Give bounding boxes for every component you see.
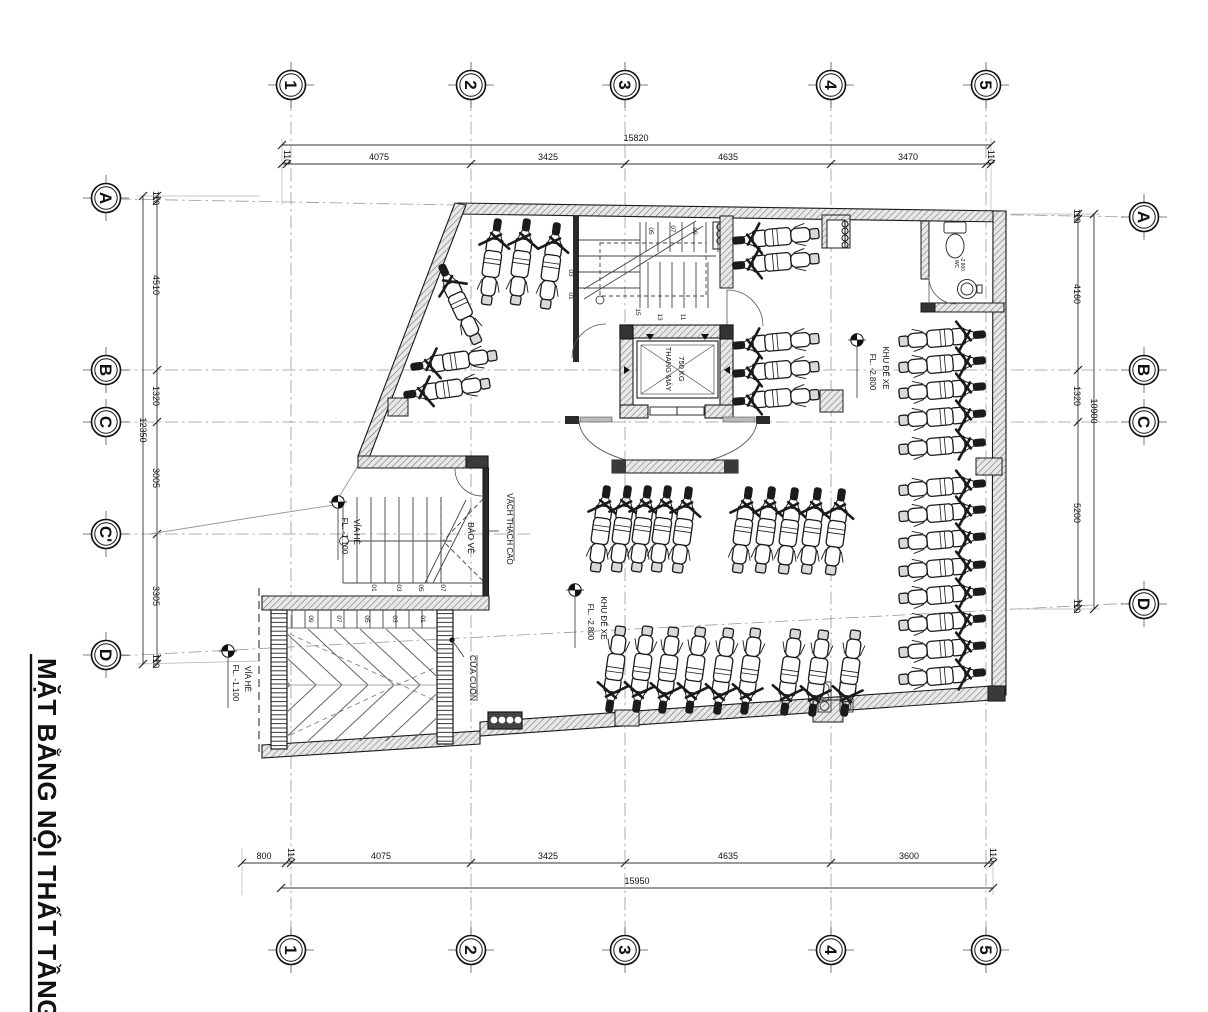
wall-bottom xyxy=(480,686,992,736)
motorbike-icon xyxy=(401,368,491,410)
door-stub xyxy=(565,416,579,424)
parking-level-label: FL. -2.800 xyxy=(586,604,595,641)
grid-bubble: 4 xyxy=(808,62,854,108)
motorbike-icon xyxy=(731,379,820,416)
grid-bubble: C xyxy=(83,399,129,445)
wc-level-text: -2.800 xyxy=(959,257,965,271)
dimension-text: 10900 xyxy=(1089,398,1099,423)
grid-bubble: 5 xyxy=(963,62,1009,108)
toilet-icon xyxy=(944,222,966,258)
sheet-title-text: MẶT BẰNG NỘI THẤT TẦNG HẦM xyxy=(32,658,62,1012)
sink-icon xyxy=(958,280,983,299)
wall-right xyxy=(992,211,1006,695)
wall-block xyxy=(466,456,488,468)
dimension-text: 1320 xyxy=(1072,386,1082,406)
dimension-text: 4160 xyxy=(1072,284,1082,304)
motorbike-icon xyxy=(898,603,987,640)
motorbike-icon xyxy=(674,625,716,715)
step-number: 07 xyxy=(439,584,446,592)
door-arc xyxy=(455,469,482,496)
step-number: 09 xyxy=(307,615,314,623)
elevator-label-line2: 750 KG xyxy=(677,356,686,382)
motorbike-icon xyxy=(815,486,857,576)
motorbike-icon xyxy=(898,427,987,464)
dimension-text: 15950 xyxy=(624,876,649,886)
dimension-text: 4075 xyxy=(371,851,391,861)
grid-bubble-label: B xyxy=(96,364,115,376)
security-room-label: BẢO VỆ xyxy=(466,522,477,554)
partition-label: VÁCH THẠCH CAO xyxy=(489,493,514,564)
grid-bubble-label: 2 xyxy=(461,80,480,89)
dimension-text: 15820 xyxy=(623,133,648,143)
step-number: 11 xyxy=(679,314,686,321)
step-number: 05 xyxy=(417,584,424,592)
drawing-sheet: 1582011040753425463534701101595080011040… xyxy=(0,0,1208,1012)
motorbike-icon xyxy=(898,630,987,667)
dimension-text: 5200 xyxy=(1072,503,1082,523)
parking-area-label: KHU ĐỂ XE xyxy=(881,346,890,389)
grid-bubble: B xyxy=(83,347,129,393)
stair-right-wall xyxy=(720,216,733,288)
door-arc xyxy=(929,277,956,304)
lobby-wall xyxy=(612,460,738,473)
dimension-text: 800 xyxy=(256,851,271,861)
top-shaft-box xyxy=(822,215,850,248)
wc-label-text: WC xyxy=(953,260,959,269)
dimension-text: 1320 xyxy=(151,386,161,406)
motorbike-icon xyxy=(731,243,820,280)
grid-bubble: D xyxy=(1121,581,1167,627)
site-boundary-line xyxy=(150,458,363,534)
level-marker-sidewalk-2: VỈA HÈ FL. -1.100 xyxy=(219,645,252,708)
motorbike-icon xyxy=(898,345,987,382)
motorbike-icon xyxy=(731,351,820,388)
parking-level-label: FL. -2.800 xyxy=(868,354,877,391)
dimension-text: 3425 xyxy=(538,851,558,861)
grid-bubble: A xyxy=(83,175,129,221)
motorbike-icon xyxy=(898,576,987,613)
drain-grille xyxy=(488,712,522,729)
grid-bubble-label: B xyxy=(1134,364,1153,376)
grid-bubble: 2 xyxy=(448,927,494,973)
grid-bubble-label: D xyxy=(96,649,115,661)
parking-area-label: KHU ĐỂ XE xyxy=(599,596,608,639)
step-number: 07 xyxy=(669,225,676,233)
grid-bubble: C' xyxy=(83,511,129,557)
grid-bubble: 1 xyxy=(268,62,314,108)
dimension-text: 3425 xyxy=(538,152,558,162)
grid-bubble: 5 xyxy=(963,927,1009,973)
motorbike-icon xyxy=(471,216,513,306)
wall-security-right xyxy=(483,468,489,600)
door-stub xyxy=(756,416,770,424)
elevator xyxy=(620,325,733,418)
grid-bubble: D xyxy=(83,632,129,678)
grid-bubble: C xyxy=(1121,399,1167,445)
grid-bubble-label: 5 xyxy=(976,80,995,89)
wall-corner-block xyxy=(988,686,1005,701)
dimension-text: 12350 xyxy=(138,417,148,442)
grid-bubble: 4 xyxy=(808,927,854,973)
roller-door-label: CỬA CUỐN xyxy=(468,655,479,701)
grid-bubble-label: 4 xyxy=(821,80,840,90)
lobby-doors xyxy=(565,416,770,473)
grid-bubble-label: 3 xyxy=(615,80,634,89)
grid-bubble-label: 3 xyxy=(615,945,634,954)
motorbike-icon xyxy=(898,398,987,435)
step-number: 07 xyxy=(335,615,342,623)
motorbike-icon xyxy=(621,624,663,714)
sidewalk-label: VỈA HÈ xyxy=(352,519,361,545)
motorbike-icon xyxy=(408,340,498,382)
door-arc xyxy=(666,421,757,466)
grid-bubble: 3 xyxy=(602,927,648,973)
step-number: 15 xyxy=(634,308,641,316)
motorbike-icon xyxy=(898,468,987,505)
column xyxy=(388,398,408,416)
sidewalk-label: VỈA HÈ xyxy=(243,666,252,692)
step-number: 13 xyxy=(656,313,663,321)
stair-left-wall xyxy=(573,216,579,362)
dimension-text: 4510 xyxy=(151,275,161,295)
dimension-text: 4635 xyxy=(718,152,738,162)
step-number: 05 xyxy=(363,615,370,623)
grid-bubble-label: 2 xyxy=(461,945,480,954)
step-number: 03 xyxy=(395,584,402,592)
grid-bubble-label: 1 xyxy=(281,945,300,954)
ramp-chevrons xyxy=(230,629,498,741)
grid-bubble: 1 xyxy=(268,927,314,973)
grid-bubble-label: 1 xyxy=(281,80,300,89)
grid-bubble-label: C xyxy=(1134,416,1153,428)
dimension-text: 4075 xyxy=(369,152,389,162)
door-arc xyxy=(579,421,670,466)
elevator-label-line1: THANG MÁY xyxy=(664,347,673,392)
level-marker-parking-2: KHU ĐỂ XE FL. -2.800 xyxy=(566,584,608,648)
grid-bubble-label: A xyxy=(1134,211,1153,223)
sheet-title: MẶT BẰNG NỘI THẤT TẦNG HẦM xyxy=(31,654,62,1012)
grid-bubble-label: 5 xyxy=(976,945,995,954)
level-marker-sidewalk-1: VỈA HÈ FL. -1.100 xyxy=(329,496,361,560)
sidewalk-level-label: FL. -1.100 xyxy=(231,665,240,702)
grid-bubble: 3 xyxy=(602,62,648,108)
grid-bubble-label: C' xyxy=(96,526,115,542)
step-number: 03 xyxy=(391,615,398,623)
dimension-text: 3600 xyxy=(899,851,919,861)
step-number: 03 xyxy=(567,269,574,277)
grid-bubble: A xyxy=(1121,194,1167,240)
step-number: 09 xyxy=(691,227,698,235)
level-marker-parking-1: KHU ĐỂ XE FL. -2.800 xyxy=(848,334,890,398)
grid-bubble-label: A xyxy=(96,192,115,204)
grid-bubble-label: C xyxy=(96,416,115,428)
step-number: 01 xyxy=(419,615,426,623)
ramp-left-track xyxy=(271,610,287,749)
column xyxy=(976,458,1002,475)
dimension-text: 3470 xyxy=(898,152,918,162)
dimension-text: 3305 xyxy=(151,586,161,606)
door-arc xyxy=(727,290,763,326)
roller-door-track xyxy=(437,610,453,744)
grid-bubble-label: 4 xyxy=(821,945,840,955)
motorbike-icon xyxy=(898,521,987,558)
motorbike-icon xyxy=(731,218,820,255)
wc-label: WC -2.800 xyxy=(953,257,965,271)
wall-band-ramp-top xyxy=(262,596,489,610)
motorbike-icon xyxy=(898,494,987,531)
grid-bubble: B xyxy=(1121,347,1167,393)
step-number: 01 xyxy=(567,292,574,300)
dimension-text: 4635 xyxy=(718,851,738,861)
grid-bubble-label: D xyxy=(1134,598,1153,610)
motorbike-icon xyxy=(898,319,987,356)
sidewalk-level-label: FL. -1.100 xyxy=(340,518,349,555)
motorbike-icon xyxy=(898,549,987,586)
floor-plan-canvas: 1582011040753425463534701101595080011040… xyxy=(0,0,1208,1012)
motorbike-icon xyxy=(702,626,744,716)
step-number: 05 xyxy=(647,227,654,235)
motorbike-icon xyxy=(898,371,987,408)
step-number: 01 xyxy=(370,584,377,592)
partition-label-text: VÁCH THẠCH CAO xyxy=(505,493,514,564)
column xyxy=(820,390,843,412)
motorbike-icon xyxy=(731,323,820,360)
dimension-text: 3005 xyxy=(151,468,161,488)
grid-bubble: 2 xyxy=(448,62,494,108)
wall-diagonal xyxy=(358,203,466,458)
motorbike-icon xyxy=(530,220,572,310)
ramp xyxy=(230,610,498,749)
